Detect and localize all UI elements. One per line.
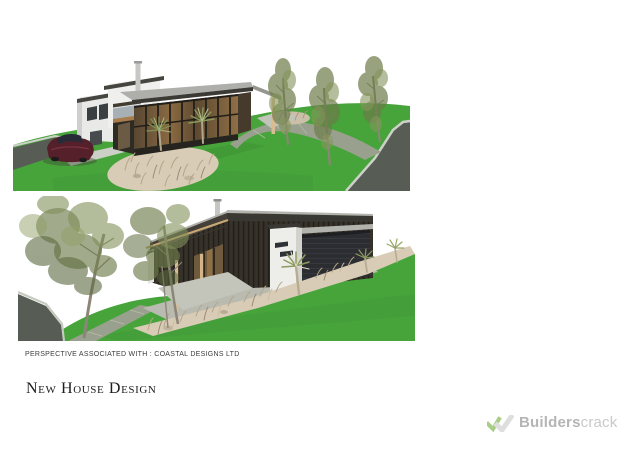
perspective-render-entry-view: [18, 196, 418, 343]
builderscrack-check-icon: [487, 415, 514, 432]
caption: PERSPECTIVE ASSOCIATED WITH : COASTAL DE…: [25, 351, 240, 358]
page-title: New House Design: [26, 380, 156, 398]
perspective-render-street-view: [13, 18, 413, 191]
builderscrack-logo: Builderscrack: [487, 413, 617, 433]
entry-tower: [270, 227, 296, 291]
watermark-text-light: crack: [581, 414, 618, 431]
document-page: PERSPECTIVE ASSOCIATED WITH : COASTAL DE…: [0, 0, 637, 450]
chimney: [136, 63, 141, 95]
render-top-illustration: [13, 18, 413, 191]
render-bottom-illustration: [18, 196, 418, 343]
watermark-text-bold: Builders: [519, 414, 581, 431]
road: [18, 292, 64, 341]
